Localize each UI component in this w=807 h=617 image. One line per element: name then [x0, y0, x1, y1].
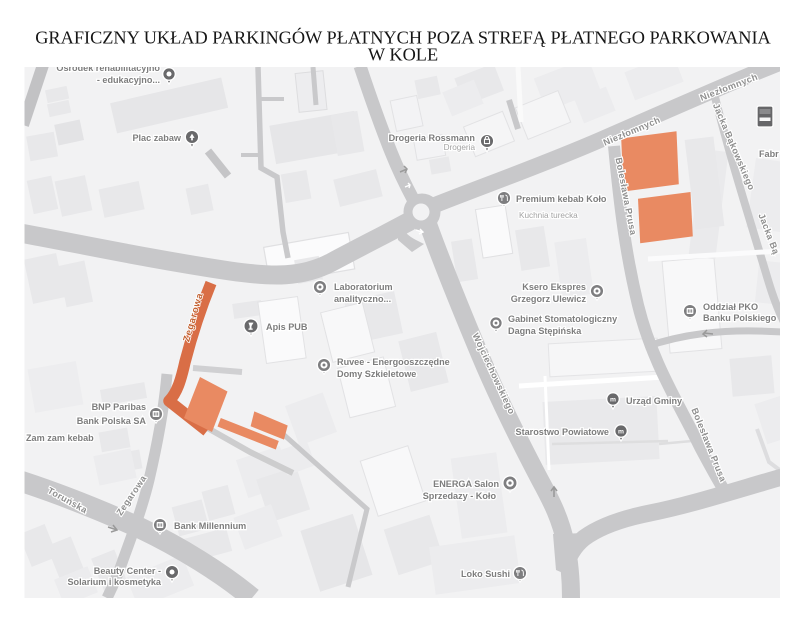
- svg-text:Kuchnia turecka: Kuchnia turecka: [519, 211, 578, 220]
- svg-text:Beauty Center -: Beauty Center -: [94, 566, 161, 576]
- svg-text:Ksero Ekspres: Ksero Ekspres: [522, 282, 586, 292]
- svg-text:Solarium i kosmetyka: Solarium i kosmetyka: [67, 577, 161, 587]
- svg-text:Laboratorium: Laboratorium: [334, 282, 393, 292]
- svg-text:W KOLE: W KOLE: [368, 44, 438, 64]
- svg-text:ENERGA Salon: ENERGA Salon: [433, 479, 499, 489]
- svg-text:Ośrodek rehabilitacyjno: Ośrodek rehabilitacyjno: [56, 63, 160, 73]
- svg-text:- edukacyjno...: - edukacyjno...: [97, 75, 160, 85]
- svg-text:Bank Millennium: Bank Millennium: [174, 521, 246, 531]
- svg-text:Premium kebab Koło: Premium kebab Koło: [516, 194, 607, 204]
- svg-text:Plac zabaw: Plac zabaw: [132, 133, 181, 143]
- svg-text:BNP Paribas: BNP Paribas: [92, 402, 146, 412]
- svg-text:Fabr: Fabr: [759, 149, 779, 159]
- svg-text:Gabinet Stomatologiczny: Gabinet Stomatologiczny: [508, 314, 618, 324]
- svg-text:m: m: [610, 397, 616, 404]
- svg-text:Starostwo Powiatowe: Starostwo Powiatowe: [516, 427, 609, 437]
- svg-text:Domy Szkieletowe: Domy Szkieletowe: [337, 369, 416, 379]
- svg-text:Drogeria: Drogeria: [444, 143, 476, 152]
- svg-text:analityczno...: analityczno...: [334, 294, 391, 304]
- svg-text:Apis PUB: Apis PUB: [266, 322, 308, 332]
- svg-text:Bank Polska SA: Bank Polska SA: [77, 416, 147, 426]
- svg-text:Urząd Gminy: Urząd Gminy: [626, 396, 683, 406]
- svg-text:m: m: [618, 429, 624, 436]
- svg-text:Oddział PKO: Oddział PKO: [703, 302, 758, 312]
- svg-text:Loko Sushi: Loko Sushi: [461, 569, 510, 579]
- svg-text:Sprzedazy - Koło: Sprzedazy - Koło: [423, 491, 497, 501]
- svg-text:Zam zam kebab: Zam zam kebab: [26, 433, 94, 443]
- svg-text:Dagna Stępińska: Dagna Stępińska: [508, 326, 582, 336]
- svg-text:Banku Polskiego: Banku Polskiego: [703, 313, 777, 323]
- svg-text:Grzegorz Ulewicz: Grzegorz Ulewicz: [511, 294, 587, 304]
- svg-text:Drogeria Rossmann: Drogeria Rossmann: [389, 133, 475, 143]
- svg-text:Ruvee - Energooszczędne: Ruvee - Energooszczędne: [337, 357, 450, 367]
